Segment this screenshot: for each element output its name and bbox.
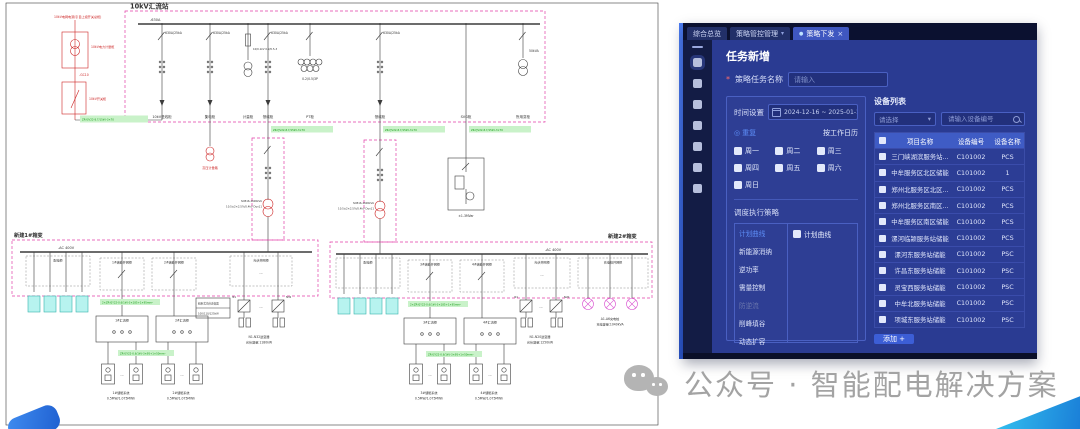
tab-strategy-management-label: 策略管控管理	[736, 29, 778, 39]
bay-name-7: 所用变柜	[516, 114, 530, 119]
weekday-thu[interactable]: 周四	[734, 163, 775, 173]
incoming-metering-label: 10kV电力计量柜	[91, 44, 114, 49]
weekday-group: 周一 周二 周三 周四 周五 周六 周日	[734, 146, 858, 190]
weekday-mon-label: 周一	[745, 146, 759, 156]
device-type-select[interactable]: 请选择 ▾	[874, 112, 936, 126]
sidebar-icon-7[interactable]	[693, 184, 702, 193]
weekday-thu-label: 周四	[745, 163, 759, 173]
box2-pv-label-1: N1-N20逆变器	[530, 334, 551, 339]
box2-lv-cable-2: ZR-YJY22-0.6/1kV-3×95+1×50mm²	[428, 353, 474, 357]
box1-combiner-2-label: 2#汇流柜	[175, 318, 189, 323]
cell-name: PCS	[991, 234, 1024, 242]
menu-icon[interactable]	[692, 46, 703, 48]
watermark-text: 公众号 · 智能配电解决方案	[684, 362, 1059, 404]
cell-code: C101002	[951, 202, 991, 210]
row-checkbox[interactable]	[879, 267, 886, 274]
strategy-item-reverse-power[interactable]: 逆功率	[735, 260, 787, 278]
box1-combiner-1-label: 1#汇流柜	[115, 318, 129, 323]
cell-name: PSC	[991, 283, 1024, 291]
box2-inv-first: N1	[514, 295, 518, 299]
cell-code: C101002	[951, 234, 991, 242]
table-row[interactable]: 三门峡湖滨服务站...C101002PCS	[875, 149, 1024, 165]
strategy-section-label: 调度执行策略	[734, 207, 858, 218]
box1-pv-cabinet-label: 光伏并网柜	[253, 258, 268, 263]
box1-lv-cable-2: ZR-YJY22-0.6/1kV-3×95+1×50mm²	[120, 352, 166, 356]
t1-spec-2: 10.5±2×2.5%/0.4kV Dyn11	[226, 205, 262, 209]
weekday-sun[interactable]: 周日	[734, 180, 775, 190]
box2-ev-label-1: A1-A6充电桩	[601, 316, 620, 321]
row-checkbox[interactable]	[879, 186, 886, 193]
cell-name: PCS	[991, 218, 1024, 226]
col-name: 设备名称	[991, 136, 1024, 146]
tab-dot-icon: ●	[799, 31, 803, 37]
table-row[interactable]: 漯河临颍服务站储能C101002PCS	[875, 230, 1024, 246]
device-table: 项目名称 设备编号 设备名称 三门峡湖滨服务站...C101002PCS 中牟服…	[874, 132, 1025, 328]
date-range-picker[interactable]: 2024-12-16 ~ 2025-01-18	[768, 104, 858, 120]
box1-lv-bus-label: -AC 400V	[58, 246, 75, 250]
panel-bottom-edge	[683, 353, 1037, 359]
box2-batt-dots-1: ···	[428, 374, 431, 378]
cell-project: 郑州北服务区北区...	[889, 185, 951, 194]
cell-name: PSC	[991, 299, 1024, 307]
box2-pv-label-2: 光伏容量:1250kW	[527, 340, 553, 345]
repeat-label: 重复	[742, 128, 756, 138]
page-title: 任务新增	[726, 48, 1025, 64]
box2-ev-cabinet-label: 充电桩并网柜	[604, 260, 623, 265]
cell-project: 漯河临颍服务站储能	[889, 234, 951, 243]
box2-ess-1a: 3#储能系统	[421, 390, 438, 395]
bay-name-6: SVG柜	[461, 114, 472, 119]
cell-code: C101002	[951, 218, 991, 226]
cell-name: PSC	[991, 250, 1024, 258]
box1-batt-dots-2: ···	[180, 374, 183, 378]
row-checkbox[interactable]	[879, 153, 886, 160]
table-row[interactable]: 中牟服务区北区储能C1010021	[875, 165, 1024, 181]
required-mark: *	[726, 75, 730, 84]
watermark: 公众号 · 智能配电解决方案	[624, 362, 1059, 404]
weekday-tue-label: 周二	[786, 146, 800, 156]
row-checkbox[interactable]	[879, 300, 886, 307]
sidebar-icon-2[interactable]	[693, 79, 702, 88]
search-icon[interactable]	[1013, 116, 1020, 123]
cell-name: PCS	[991, 153, 1024, 161]
work-calendar-link[interactable]: 按工作日历	[823, 128, 858, 138]
table-row[interactable]: 中牟服务区南区储能C101002PCS	[875, 214, 1024, 230]
calendar-icon	[772, 108, 781, 117]
tab-overview[interactable]: 综合总览	[687, 27, 727, 40]
chevron-down-icon: ▾	[781, 30, 784, 37]
time-setting-label: 时间设置	[734, 107, 764, 118]
cell-code: C101002	[951, 185, 991, 193]
incoming-node-label: -GC10	[79, 73, 89, 77]
sidebar-icon-5[interactable]	[693, 142, 702, 151]
hv-metering-box-label: 高压计量箱	[202, 165, 217, 170]
box2-batt-dots-2: ···	[488, 374, 491, 378]
sidebar-icon-3[interactable]	[693, 100, 702, 109]
hv-station: 10kV汇流站 -630A 630A/25kA 10kV进线柜 630A/25k…	[125, 2, 545, 171]
box1-ess-1a: 1#储能系统	[113, 390, 130, 395]
weekday-wed[interactable]: 周三	[817, 146, 858, 156]
row-checkbox[interactable]	[879, 169, 886, 176]
hv-cable-label-4: ZR-YJV22-8.7/15kV-3×70	[471, 128, 503, 132]
app-panel: 综合总览 策略管控管理 ▾ ● 策略下发 ×	[679, 23, 1037, 359]
plan-curve-checkbox-label: 计划曲线	[804, 229, 831, 239]
date-range-value: 2024-12-16 ~ 2025-01-18	[784, 109, 858, 116]
table-row[interactable]: 郑州北服务区南区...C101002PCS	[875, 198, 1024, 214]
box-substation-2: 新建2#箱变 -AC 400V 配电柜 3#储能并网柜 4#储能并网柜 2×ZR…	[330, 232, 652, 401]
row-checkbox[interactable]	[879, 202, 886, 209]
table-row[interactable]: 灵宝西服务站储能C101002PSC	[875, 279, 1024, 295]
box1-ess-2b: 0.5MW/1.075MWh	[167, 397, 195, 401]
row-checkbox[interactable]	[879, 251, 886, 258]
checkbox-icon[interactable]	[817, 147, 825, 155]
weekday-fri[interactable]: 周五	[775, 163, 816, 173]
hv-cable-label-2: ZR-YJV22-8.7/15kV-3×70	[273, 128, 305, 132]
cell-code: C101002	[951, 169, 991, 177]
box2-ess-2b: 0.5MW/1.075MWh	[475, 397, 503, 401]
svg-device-label: ±1-3MVar	[458, 214, 474, 218]
plan-curve-checkbox-row[interactable]: 计划曲线	[793, 229, 852, 239]
cell-name: PCS	[991, 185, 1024, 193]
cell-project: 中牟服务区南区储能	[889, 217, 951, 226]
device-search[interactable]	[941, 112, 1025, 126]
box2-name: 新建2#箱变	[608, 232, 638, 240]
cell-project: 许昌东服务站储能	[889, 266, 951, 275]
box1-inv-note-2: 100/110/125kW	[198, 312, 219, 316]
strategy-item-renewable[interactable]: 新能源消纳	[735, 242, 787, 260]
bay-rating-7: 50kVA	[529, 49, 540, 53]
cell-project: 灵宝西服务站储能	[889, 283, 951, 292]
close-icon[interactable]: ×	[837, 30, 843, 38]
bay-rating-2: 10/0.1kV 0.2/0.5-3	[253, 47, 277, 51]
box1-ess-2a: 2#储能系统	[173, 390, 190, 395]
cell-code: C101002	[951, 250, 991, 258]
weekday-wed-label: 周三	[828, 146, 842, 156]
col-project: 项目名称	[889, 136, 951, 146]
col-code: 设备编号	[951, 136, 991, 146]
incoming-source-label: 10kV电网电源(引自上级开关总柜)	[54, 14, 101, 19]
device-list-title: 设备列表	[874, 96, 1025, 107]
table-row[interactable]: 项城东服务站储能C101002PSC	[875, 312, 1024, 327]
screenshot-stage: 10kV汇流站 -630A 630A/25kA 10kV进线柜 630A/25k…	[0, 0, 1080, 429]
checkbox-icon[interactable]	[734, 147, 742, 155]
weekday-sat[interactable]: 周六	[817, 163, 858, 173]
hv-cable-label-3: ZR-YJV22-8.7/15kV-3×70	[385, 128, 417, 132]
sidebar	[683, 40, 712, 353]
box1-inv-last: N32	[286, 295, 292, 299]
bay-rating-3: 630A/25kA	[271, 31, 289, 35]
box2-lv-cable-1: 2×ZR-YJY22-0.6/1kV-3×185+1×95mm²	[410, 303, 461, 307]
cell-code: C101002	[951, 316, 991, 324]
bay-name-4: PT柜	[306, 114, 314, 119]
box1-dist-cabinet-label: 配电柜	[53, 258, 62, 263]
row-checkbox[interactable]	[879, 284, 886, 291]
chevron-down-icon: ▾	[928, 115, 931, 123]
weekday-mon[interactable]: 周一	[734, 146, 775, 156]
box2-ess-1b: 0.5MW/1.075MWh	[415, 397, 443, 401]
hv-cable-label-1: ZR-YJV22-8.7/15kV-3×70	[82, 118, 114, 122]
strategy-list: 计划曲线 新能源消纳 逆功率 需量控制 防逆流 削峰填谷 动态扩容	[735, 224, 788, 342]
box1-ess-1b: 0.5MW/1.075MWh	[107, 397, 135, 401]
bay-rating-4: 0.2/0.5/3P	[302, 77, 318, 81]
strategy-item-plan-curve[interactable]: 计划曲线	[735, 224, 787, 242]
select-all-checkbox[interactable]	[879, 137, 886, 144]
box1-inv-dots: ···	[259, 306, 262, 310]
checkbox-icon[interactable]	[817, 164, 825, 172]
task-name-label: 策略任务名称	[735, 74, 783, 85]
box1-name: 新建1#箱变	[14, 231, 44, 239]
schedule-card: 时间设置 2024-12-16 ~ 2025-01-18 ◎ 重复	[726, 96, 866, 341]
box2-inv-last: N20	[564, 295, 570, 299]
row-checkbox[interactable]	[879, 316, 886, 323]
station-title: 10kV汇流站	[130, 2, 169, 11]
cell-name: 1	[991, 169, 1024, 177]
box1-pv-label-1: N1-N32逆变器	[249, 334, 270, 339]
box1-inv-first: N1	[232, 295, 236, 299]
cell-project: 郑州北服务区南区...	[889, 201, 951, 210]
strategy-item-peak-shaving[interactable]: 削峰填谷	[735, 314, 787, 332]
sidebar-icon-4[interactable]	[693, 121, 702, 130]
table-row[interactable]: 许昌东服务站储能C101002PSC	[875, 263, 1024, 279]
cell-code: C101002	[951, 267, 991, 275]
t2-spec-1: SCB16-1600kVA	[353, 201, 374, 205]
checkbox-icon[interactable]	[775, 164, 783, 172]
cell-name: PCS	[991, 202, 1024, 210]
device-search-input[interactable]	[946, 114, 1013, 124]
tab-bar: 综合总览 策略管控管理 ▾ ● 策略下发 ×	[683, 23, 1037, 40]
bay-rating-5: 630A/25kA	[383, 31, 401, 35]
t2-spec-2: 10.5±2×2.5%/0.4kV Dyn11	[338, 207, 374, 211]
weekday-sun-label: 周日	[745, 180, 759, 190]
cell-project: 中牟北服务站储能	[889, 299, 951, 308]
strategy-item-dynamic-expansion[interactable]: 动态扩容	[735, 332, 787, 350]
cell-project: 漯河东服务站储能	[889, 250, 951, 259]
wechat-icon	[624, 363, 672, 403]
row-checkbox[interactable]	[879, 218, 886, 225]
box2-ev-label-2: 充电容量:1040kVA	[596, 322, 624, 327]
cell-code: C101002	[951, 283, 991, 291]
select-placeholder: 请选择	[879, 114, 899, 124]
tab-strategy-dispatch[interactable]: ● 策略下发 ×	[793, 27, 849, 40]
checkbox-icon[interactable]	[775, 147, 783, 155]
add-button[interactable]: 添加 +	[874, 334, 914, 344]
sld-diagram: 10kV汇流站 -630A 630A/25kA 10kV进线柜 630A/25k…	[0, 0, 665, 429]
strategy-detail: 计划曲线	[788, 224, 857, 342]
table-header-row: 项目名称 设备编号 设备名称	[875, 133, 1024, 149]
hv-feeders: ZR-YJV22-8.7/15kV-3×70 SCB16-1600kVA 10.…	[226, 108, 531, 254]
weekday-tue[interactable]: 周二	[775, 146, 816, 156]
task-name-input[interactable]	[788, 72, 888, 87]
cell-name: PSC	[991, 316, 1024, 324]
checkbox-icon[interactable]	[734, 181, 742, 189]
strategy-item-anti-backflow[interactable]: 防逆流	[735, 296, 787, 314]
device-list-section: 设备列表 请选择 ▾	[874, 96, 1025, 341]
hv-bus-label: -630A	[150, 18, 161, 22]
utility-incoming: 10kV电网电源(引自上级开关总柜) 10kV电力计量柜 -GC10 10kV开…	[54, 14, 162, 123]
table-row[interactable]: 郑州北服务区北区...C101002PCS	[875, 182, 1024, 198]
checkbox-icon[interactable]	[734, 164, 742, 172]
divider	[734, 199, 858, 200]
cell-project: 中牟服务区北区储能	[889, 168, 951, 177]
tab-overview-label: 综合总览	[693, 29, 721, 39]
box1-lv-cable-1: 2×ZR-YJY22-0.6/1kV-3×185+1×95mm²	[102, 301, 153, 305]
sidebar-icon-6[interactable]	[693, 163, 702, 172]
tab-strategy-dispatch-label: 策略下发	[806, 29, 834, 39]
row-checkbox[interactable]	[879, 235, 886, 242]
cell-code: C101002	[951, 153, 991, 161]
strategy-box: 计划曲线 新能源消纳 逆功率 需量控制 防逆流 削峰填谷 动态扩容	[734, 223, 858, 343]
box2-inv-dots: ···	[539, 306, 542, 310]
table-row[interactable]: 中牟北服务站储能C101002PSC	[875, 296, 1024, 312]
box2-pv-dots: ···	[540, 274, 543, 278]
box2-combiner-2-label: 4#汇流柜	[483, 320, 497, 325]
box2-dist-cabinet-label: 配电柜	[363, 260, 372, 265]
tab-strategy-management[interactable]: 策略管控管理 ▾	[730, 27, 790, 40]
bay-name-2: 计量柜	[243, 114, 254, 119]
table-row[interactable]: 漯河东服务站储能C101002PSC	[875, 247, 1024, 263]
box2-ess-2a: 4#储能系统	[481, 390, 498, 395]
box1-inv-note-1: 组串式光伏逆变器	[198, 302, 219, 306]
cell-name: PSC	[991, 267, 1024, 275]
strategy-item-demand-control[interactable]: 需量控制	[735, 278, 787, 296]
radio-icon: ◎	[734, 129, 740, 137]
repeat-radio[interactable]: ◎ 重复	[734, 128, 756, 138]
checkbox-icon[interactable]	[793, 230, 801, 238]
box1-batt-dots-1: ···	[120, 374, 123, 378]
incoming-switch-label: 10kV开关柜	[89, 96, 106, 101]
cell-project: 三门峡湖滨服务站...	[889, 152, 951, 161]
box2-combiner-1-label: 3#汇流柜	[423, 320, 437, 325]
box2-lv-bus-label: -AC 400V	[545, 248, 562, 252]
bay-rating-1: 630A/25kA	[213, 31, 231, 35]
cell-project: 项城东服务站储能	[889, 315, 951, 324]
box1-pv-dots: ···	[259, 272, 262, 276]
sidebar-icon-1[interactable]	[693, 58, 702, 67]
box1-pv-label-2: 光伏容量:1180kW	[246, 340, 272, 345]
bay-rating-0: 630A/25kA	[165, 31, 183, 35]
cell-code: C101002	[951, 299, 991, 307]
weekday-fri-label: 周五	[786, 163, 800, 173]
weekday-sat-label: 周六	[828, 163, 842, 173]
box-substation-1: 新建1#箱变 -AC 400V 配电柜 1#储能并网柜 2#储能并网柜 2×ZR…	[12, 231, 318, 401]
box2-pv-cabinet-label: 光伏并网柜	[534, 260, 549, 265]
t1-spec-1: SCB16-1600kVA	[241, 199, 262, 203]
